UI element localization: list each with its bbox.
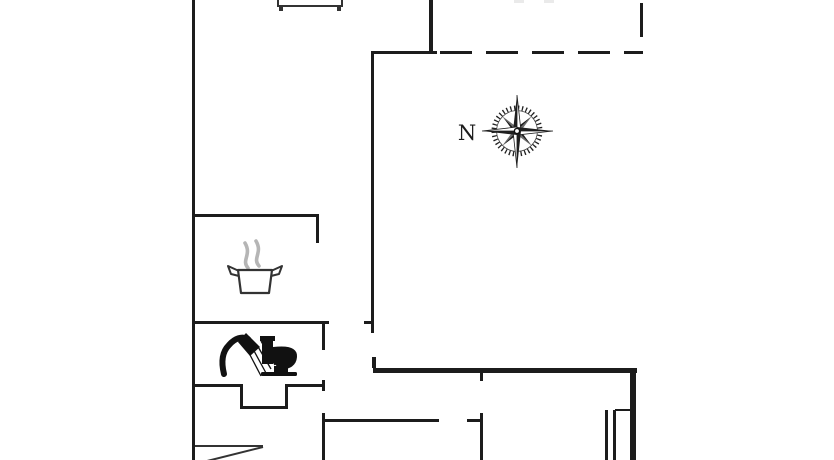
wall-kitchen-return	[316, 214, 319, 243]
wall-living-left-jamb	[364, 321, 371, 324]
compass-rose-icon	[482, 95, 553, 168]
wall-notch-right	[285, 384, 288, 409]
wall-left-outer	[192, 0, 195, 460]
door-leaf-top-tick	[615, 409, 632, 411]
wall-bedroom-right	[480, 413, 483, 460]
door-leaf-line-2	[613, 410, 616, 460]
faint-furniture-mark-2	[544, 0, 554, 3]
bed-diagonal-line	[203, 447, 263, 460]
toilet-icon	[260, 336, 297, 376]
terrace-dashed-vertical-segment	[640, 3, 643, 37]
wall-top-right-vertical	[429, 0, 433, 54]
wall-notch-bottom	[240, 406, 288, 409]
wall-mid-door-jamb	[480, 373, 483, 381]
wall-living-bottom	[373, 368, 637, 373]
wall-living-left	[371, 54, 374, 333]
wall-bedroom-top-left	[322, 419, 439, 422]
compass-north-label: N	[455, 121, 479, 147]
bed-top-edge	[195, 445, 263, 447]
shower-icon	[222, 333, 275, 376]
wall-top-horizontal	[371, 51, 437, 54]
floor-plan-canvas: N	[0, 0, 834, 460]
table-foot-left	[279, 7, 283, 11]
terrace-dashed-boundary	[440, 51, 643, 54]
table-foot-right	[337, 7, 341, 11]
wall-living-bottom-stub	[372, 357, 376, 368]
wall-bath-bottom-left	[192, 384, 242, 387]
wall-kitchen-top	[192, 214, 319, 217]
cooking-pot-steam-icon	[228, 241, 282, 293]
wall-bath-top-stub	[322, 324, 325, 350]
table-bottom-edge	[277, 5, 343, 7]
plan-icons-overlay	[0, 0, 834, 460]
faint-furniture-mark-1	[514, 0, 524, 3]
wall-right-outer	[630, 368, 636, 460]
wall-bath-top	[192, 321, 329, 324]
wall-bath-bottom-right	[285, 384, 325, 387]
door-leaf-line-1	[605, 410, 608, 460]
wall-door-jamb-hall	[322, 380, 325, 391]
